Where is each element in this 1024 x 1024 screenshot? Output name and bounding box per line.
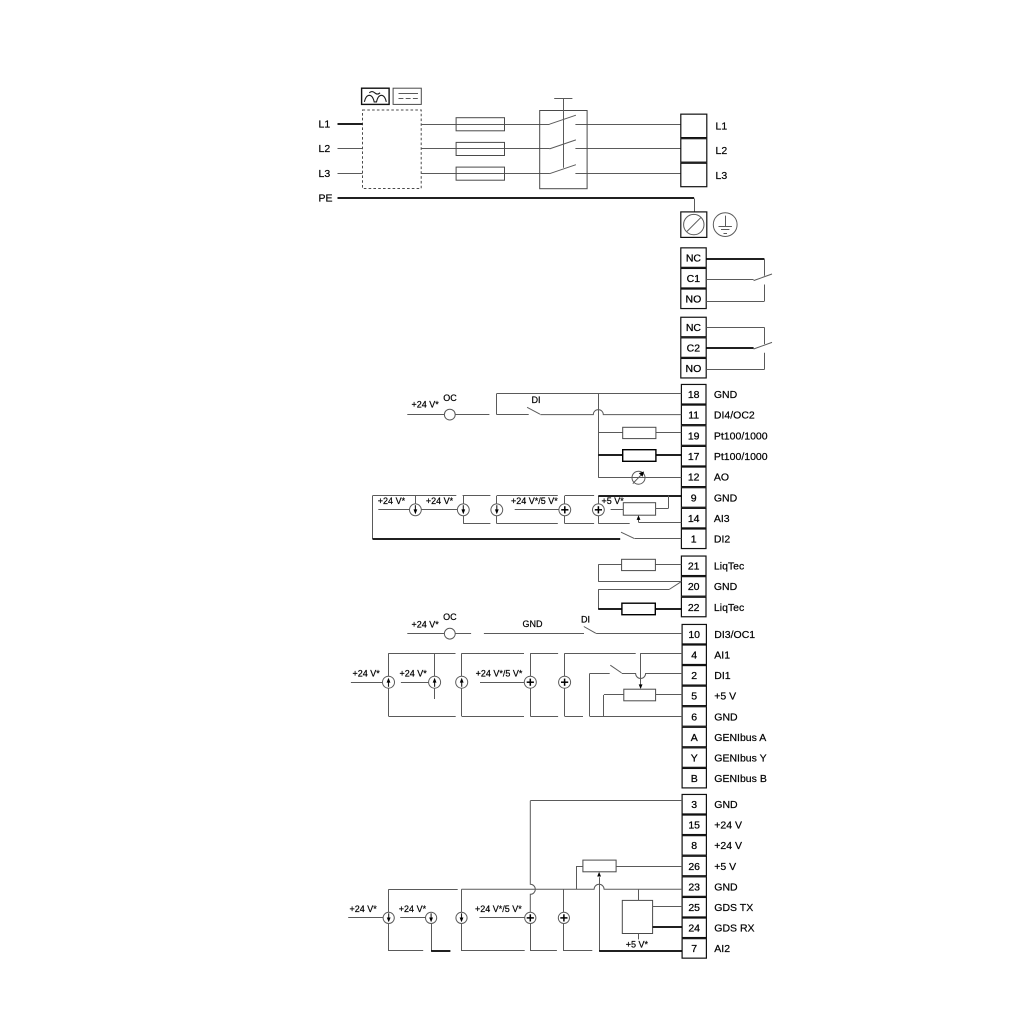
svg-text:L2: L2 xyxy=(716,145,728,157)
svg-text:GND: GND xyxy=(714,711,738,723)
svg-text:AI2: AI2 xyxy=(714,943,730,955)
svg-text:DI2: DI2 xyxy=(714,534,731,546)
svg-text:9: 9 xyxy=(691,492,697,504)
svg-text:23: 23 xyxy=(688,881,700,893)
svg-text:DI3/OC1: DI3/OC1 xyxy=(714,629,755,641)
svg-text:4: 4 xyxy=(691,650,697,662)
svg-text:19: 19 xyxy=(688,430,700,442)
svg-text:NO: NO xyxy=(686,294,702,306)
svg-text:L1: L1 xyxy=(319,118,331,130)
svg-text:+24 V*: +24 V* xyxy=(378,496,406,506)
svg-text:NC: NC xyxy=(686,322,702,334)
svg-text:GENIbus Y: GENIbus Y xyxy=(714,752,766,764)
svg-text:17: 17 xyxy=(688,451,700,463)
svg-text:GDS RX: GDS RX xyxy=(714,923,754,935)
svg-text:GND: GND xyxy=(714,581,738,593)
svg-text:14: 14 xyxy=(688,513,700,525)
svg-text:A: A xyxy=(691,732,698,744)
svg-text:NC: NC xyxy=(686,252,702,264)
svg-text:C2: C2 xyxy=(687,342,701,354)
svg-text:+24 V*/5 V*: +24 V*/5 V* xyxy=(511,496,558,506)
svg-text:AI3: AI3 xyxy=(714,513,730,525)
svg-text:AO: AO xyxy=(714,472,729,484)
svg-text:C1: C1 xyxy=(687,273,701,285)
svg-text:10: 10 xyxy=(688,629,700,641)
svg-text:GND: GND xyxy=(714,881,738,893)
svg-text:GDS TX: GDS TX xyxy=(714,902,753,914)
svg-text:GND: GND xyxy=(714,492,738,504)
svg-text:DI1: DI1 xyxy=(714,670,731,682)
svg-text:+24 V*: +24 V* xyxy=(399,904,427,914)
svg-text:+24 V*: +24 V* xyxy=(412,400,440,410)
svg-text:NO: NO xyxy=(686,363,702,375)
svg-text:1: 1 xyxy=(691,534,697,546)
svg-text:+24 V*: +24 V* xyxy=(350,904,378,914)
svg-text:22: 22 xyxy=(688,602,700,614)
svg-text:Pt100/1000: Pt100/1000 xyxy=(714,451,768,463)
svg-text:+24 V*/5 V*: +24 V*/5 V* xyxy=(475,904,522,914)
svg-text:+5 V*: +5 V* xyxy=(602,496,625,506)
svg-text:+24 V*/5 V*: +24 V*/5 V* xyxy=(476,669,523,679)
svg-text:+5 V: +5 V xyxy=(714,691,736,703)
svg-text:DI4/OC2: DI4/OC2 xyxy=(714,410,755,422)
svg-text:LiqTec: LiqTec xyxy=(714,602,744,614)
svg-text:Pt100/1000: Pt100/1000 xyxy=(714,430,768,442)
svg-text:GND: GND xyxy=(523,619,544,629)
svg-text:6: 6 xyxy=(691,711,697,723)
svg-text:AI1: AI1 xyxy=(714,650,730,662)
svg-text:+24 V: +24 V xyxy=(714,840,742,852)
svg-text:OC: OC xyxy=(443,393,457,403)
svg-text:DI: DI xyxy=(581,614,590,624)
svg-text:2: 2 xyxy=(691,670,697,682)
svg-text:7: 7 xyxy=(691,943,697,955)
svg-text:L3: L3 xyxy=(319,168,331,180)
svg-text:L2: L2 xyxy=(319,143,331,155)
svg-text:L1: L1 xyxy=(716,121,728,133)
svg-text:21: 21 xyxy=(688,561,700,573)
svg-text:OC: OC xyxy=(443,612,457,622)
svg-text:3: 3 xyxy=(691,799,697,811)
svg-text:GND: GND xyxy=(714,389,738,401)
svg-text:GND: GND xyxy=(714,799,738,811)
svg-text:GENIbus B: GENIbus B xyxy=(714,773,767,785)
svg-text:25: 25 xyxy=(688,902,700,914)
svg-text:GENIbus A: GENIbus A xyxy=(714,732,766,744)
svg-text:+5 V*: +5 V* xyxy=(626,940,649,950)
svg-text:+5 V: +5 V xyxy=(714,861,736,873)
svg-text:8: 8 xyxy=(691,840,697,852)
svg-text:+24 V*: +24 V* xyxy=(353,669,381,679)
svg-text:+24 V*: +24 V* xyxy=(426,496,454,506)
svg-text:15: 15 xyxy=(688,820,700,832)
svg-text:24: 24 xyxy=(688,923,700,935)
svg-text:Y: Y xyxy=(691,752,698,764)
svg-text:+24 V*: +24 V* xyxy=(400,669,428,679)
svg-text:26: 26 xyxy=(688,861,700,873)
svg-text:L3: L3 xyxy=(716,170,728,182)
svg-text:5: 5 xyxy=(691,691,697,703)
svg-text:12: 12 xyxy=(688,472,700,484)
svg-text:11: 11 xyxy=(688,410,699,422)
svg-text:PE: PE xyxy=(319,193,333,205)
svg-text:18: 18 xyxy=(688,389,700,401)
svg-text:+24 V: +24 V xyxy=(714,820,742,832)
svg-text:DI: DI xyxy=(532,395,541,405)
svg-text:B: B xyxy=(691,773,698,785)
svg-text:LiqTec: LiqTec xyxy=(714,561,744,573)
svg-text:20: 20 xyxy=(688,581,700,593)
svg-text:+24 V*: +24 V* xyxy=(412,619,440,629)
